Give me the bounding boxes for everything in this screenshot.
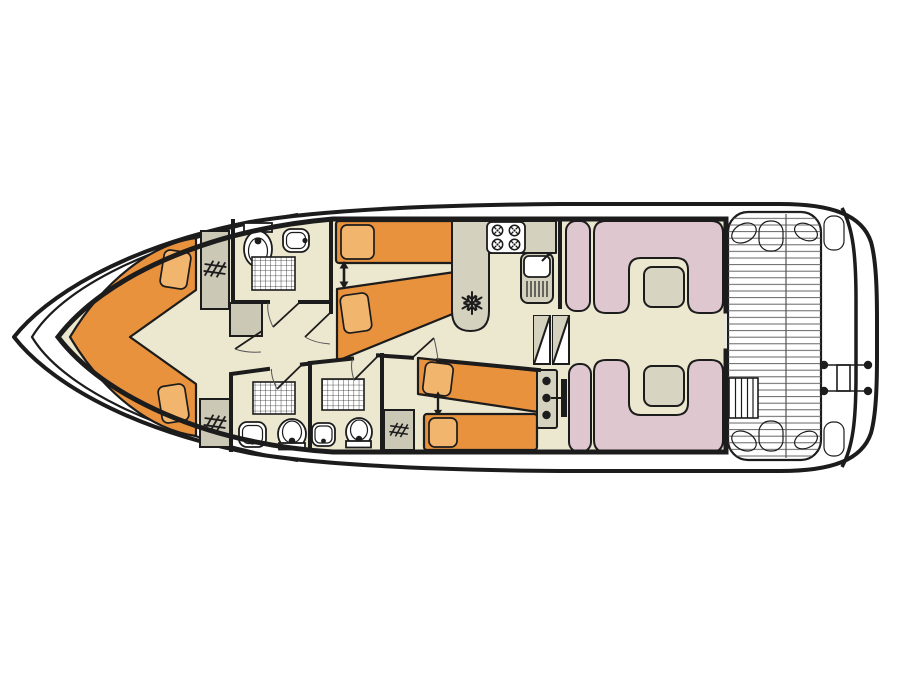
- pillow-icon: [429, 418, 457, 447]
- hob-burner-icon: [509, 225, 519, 235]
- cabinet: [230, 303, 262, 336]
- cabin-interior: [58, 219, 726, 452]
- shower-grid-icon: [252, 257, 295, 290]
- helm-lever: [561, 379, 567, 417]
- pillow-icon: [341, 225, 374, 259]
- toilet-tank: [346, 441, 371, 448]
- hob-burner-icon: [509, 239, 519, 249]
- deck-steps-icon: [729, 378, 758, 418]
- shower-grid-icon: [322, 379, 364, 410]
- pillow-icon: [339, 292, 372, 334]
- boat-floor-plan: [0, 0, 900, 675]
- hob-burner-icon: [492, 239, 502, 249]
- toilet-flush-dot: [255, 238, 262, 245]
- deck-planks-icon: [728, 212, 821, 460]
- table-icon: [644, 267, 684, 307]
- tap-dot: [302, 238, 307, 243]
- side-bench: [569, 364, 591, 452]
- tap-dot: [321, 439, 326, 444]
- hob-icon: [487, 222, 525, 253]
- pillow-icon: [422, 361, 454, 396]
- table-icon: [644, 366, 684, 406]
- shower-grid-icon: [253, 382, 295, 414]
- side-bench: [566, 221, 590, 311]
- hob-burner-icon: [492, 225, 502, 235]
